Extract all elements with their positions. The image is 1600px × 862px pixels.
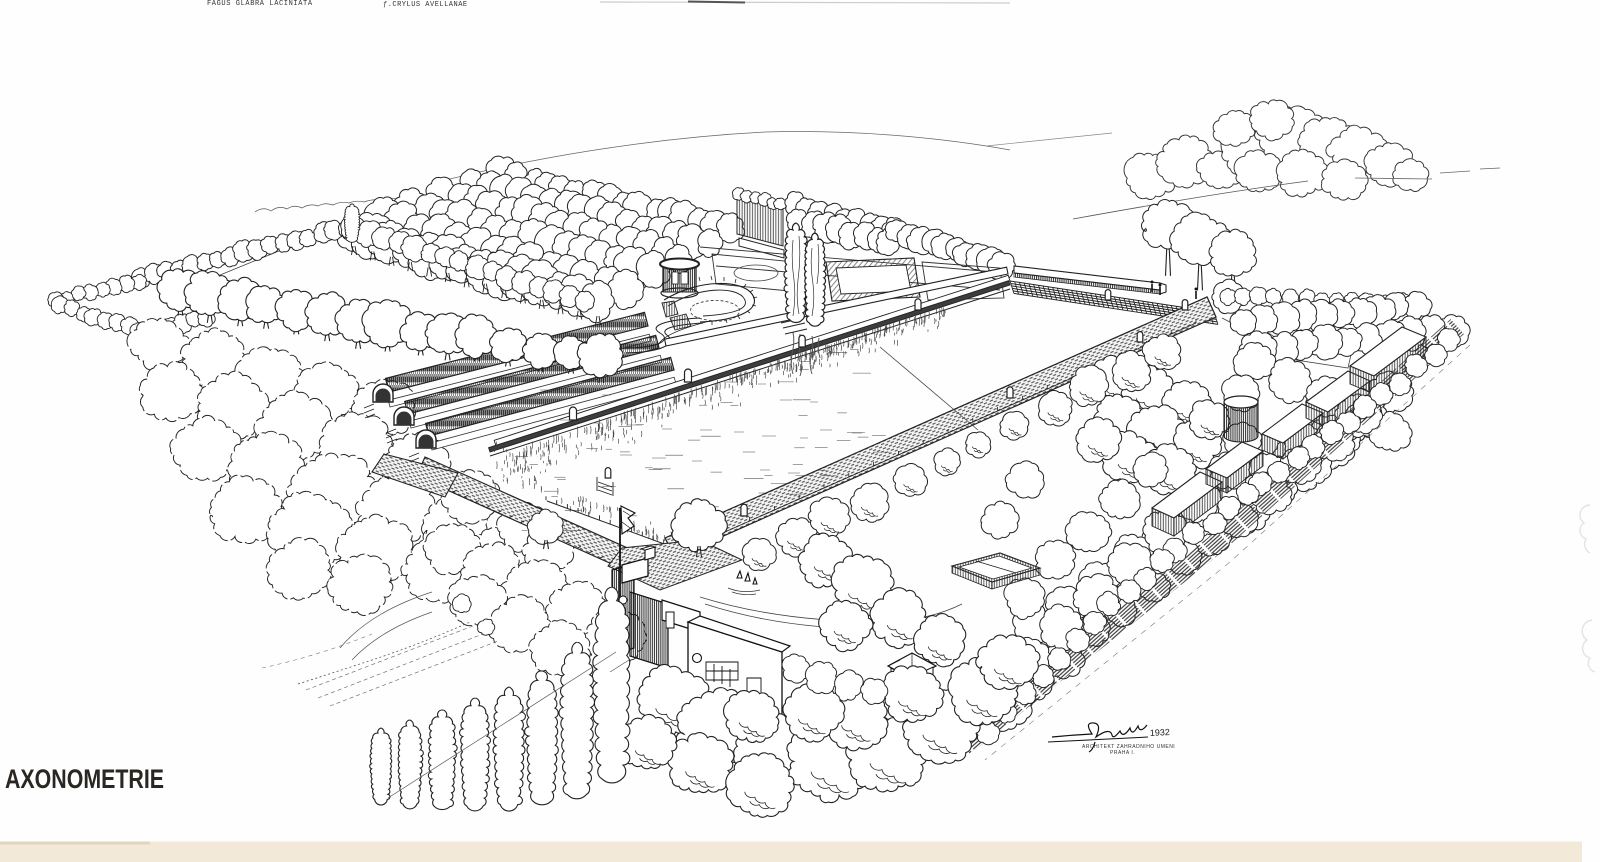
svg-text:PRAHA I.: PRAHA I.	[1110, 750, 1135, 756]
svg-text:1932: 1932	[1150, 727, 1171, 738]
svg-text:FAGUS GLABRA LACINIATA: FAGUS GLABRA LACINIATA	[207, 0, 313, 8]
svg-text:AXONOMETRIE: AXONOMETRIE	[5, 764, 164, 794]
svg-text:ƒ.CRYLUS AVELLANAE: ƒ.CRYLUS AVELLANAE	[383, 1, 468, 9]
